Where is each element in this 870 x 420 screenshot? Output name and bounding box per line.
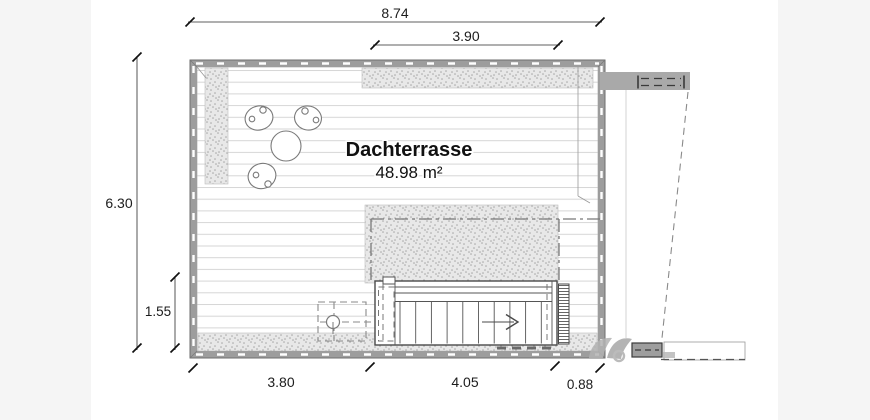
dimension-left-total-label: 6.30 bbox=[105, 195, 132, 211]
room-area: 48.98 m² bbox=[375, 163, 442, 182]
ladder-hatch bbox=[559, 284, 570, 344]
adjacent-roof-box bbox=[664, 342, 745, 360]
room-title: Dachterrasse bbox=[346, 139, 473, 161]
gravel-strip-top bbox=[362, 68, 593, 88]
floorplan-canvas: 8.74 3.90 6.30 1.55 3.80 4.05 0.88 Dacht… bbox=[0, 0, 870, 420]
dimension-top-total-label: 8.74 bbox=[381, 5, 408, 21]
gravel-block-center bbox=[365, 205, 558, 283]
gravel-strip-left bbox=[205, 68, 228, 184]
dimension-bottom-right-label: 0.88 bbox=[567, 377, 593, 392]
dimension-top-inner-label: 3.90 bbox=[452, 28, 479, 44]
staircase bbox=[375, 277, 569, 348]
dimension-left-inner-label: 1.55 bbox=[145, 304, 171, 319]
dimension-bottom-middle-label: 4.05 bbox=[451, 374, 478, 390]
dimension-bottom-left-label: 3.80 bbox=[267, 374, 294, 390]
beam-top bbox=[600, 72, 690, 90]
floorplan-screenshot: 8.74 3.90 6.30 1.55 3.80 4.05 0.88 Dacht… bbox=[0, 0, 870, 420]
planter-circle-icon bbox=[271, 131, 301, 161]
